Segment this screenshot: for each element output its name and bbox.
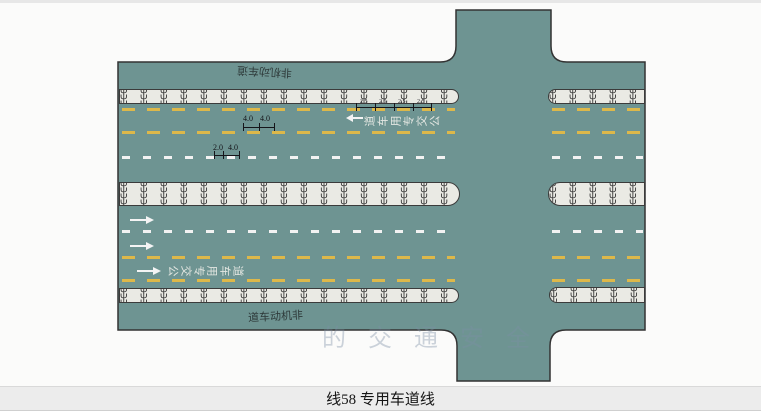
median-strip-bottom-left: Ψ Ψ Ψ Ψ Ψ Ψ Ψ Ψ Ψ Ψ Ψ Ψ Ψ Ψ Ψ Ψ Ψ Ψ Ψ Ψ … [119, 288, 459, 303]
right-arrow-marking-1 [130, 219, 146, 221]
yellow-dashed-line-top-2-right [552, 131, 643, 134]
median-strip-top-right: Ψ Ψ Ψ Ψ Ψ Ψ Ψ Ψ Ψ Ψ Ψ Ψ Ψ Ψ Ψ Ψ Ψ Ψ Ψ Ψ [548, 89, 645, 104]
dim-yellow-dash-1: 4.0 [243, 114, 253, 123]
dim-ruler-yellow-dash [243, 123, 275, 131]
grass-symbols: Ψ Ψ Ψ Ψ Ψ Ψ Ψ Ψ Ψ Ψ Ψ Ψ Ψ Ψ Ψ Ψ Ψ Ψ Ψ Ψ … [120, 182, 459, 206]
white-dashed-line-bottom-right [552, 230, 643, 233]
yellow-dashed-line-bottom-1-right [552, 256, 643, 259]
grass-symbols: Ψ Ψ Ψ Ψ Ψ Ψ Ψ Ψ Ψ Ψ Ψ Ψ Ψ Ψ Ψ Ψ Ψ Ψ Ψ Ψ … [120, 288, 458, 303]
median-strip-middle-left: Ψ Ψ Ψ Ψ Ψ Ψ Ψ Ψ Ψ Ψ Ψ Ψ Ψ Ψ Ψ Ψ Ψ Ψ Ψ Ψ … [119, 182, 460, 206]
grass-symbols: Ψ Ψ Ψ Ψ Ψ Ψ Ψ Ψ Ψ Ψ Ψ Ψ Ψ Ψ Ψ Ψ Ψ Ψ Ψ Ψ [550, 287, 644, 303]
label-top-nonmotor-lane: 非机动车道 [237, 63, 293, 82]
caption-bar: 线58 专用车道线 [0, 386, 761, 411]
grass-symbols: Ψ Ψ Ψ Ψ Ψ Ψ Ψ Ψ Ψ Ψ Ψ Ψ Ψ Ψ Ψ Ψ Ψ Ψ Ψ Ψ [549, 89, 644, 104]
dim-ruler-white-dash [214, 151, 240, 159]
grass-symbols: Ψ Ψ Ψ Ψ Ψ Ψ Ψ Ψ Ψ Ψ Ψ Ψ Ψ Ψ Ψ Ψ Ψ Ψ Ψ Ψ … [549, 182, 644, 206]
right-arrow-marking-3 [137, 270, 153, 272]
yellow-dashed-line-bottom-2-right [552, 279, 643, 282]
median-strip-bottom-right: Ψ Ψ Ψ Ψ Ψ Ψ Ψ Ψ Ψ Ψ Ψ Ψ Ψ Ψ Ψ Ψ Ψ Ψ Ψ Ψ [549, 287, 645, 303]
median-strip-top-left: Ψ Ψ Ψ Ψ Ψ Ψ Ψ Ψ Ψ Ψ Ψ Ψ Ψ Ψ Ψ Ψ Ψ Ψ Ψ Ψ … [119, 89, 459, 104]
white-dashed-line-top [122, 156, 455, 159]
label-bottom-nonmotor-lane: 非机动车道 [248, 307, 304, 326]
figure-caption: 线58 专用车道线 [326, 388, 435, 409]
median-strip-middle-right: Ψ Ψ Ψ Ψ Ψ Ψ Ψ Ψ Ψ Ψ Ψ Ψ Ψ Ψ Ψ Ψ Ψ Ψ Ψ Ψ … [548, 182, 645, 206]
yellow-dashed-line-bottom-1 [122, 256, 455, 259]
white-dashed-line-top-right [552, 156, 643, 159]
figure-page: Ψ Ψ Ψ Ψ Ψ Ψ Ψ Ψ Ψ Ψ Ψ Ψ Ψ Ψ Ψ Ψ Ψ Ψ Ψ Ψ … [0, 0, 761, 411]
pavement-text-bus-lane-bottom: 公交专用车道 [167, 264, 245, 280]
white-dashed-line-bottom [122, 230, 455, 233]
dim-yellow-dash-2: 4.0 [260, 114, 270, 123]
pavement-text-bus-lane-top: 道车用专交公 [363, 112, 441, 128]
dim-ruler-char-spacing [356, 103, 432, 111]
right-arrow-marking-2 [130, 245, 146, 247]
watermark-text: 的交通安全 [322, 318, 552, 353]
yellow-dashed-line-top-1-right [552, 108, 643, 111]
grass-symbols: Ψ Ψ Ψ Ψ Ψ Ψ Ψ Ψ Ψ Ψ Ψ Ψ Ψ Ψ Ψ Ψ Ψ Ψ Ψ Ψ … [120, 89, 458, 104]
yellow-dashed-line-top-2 [122, 131, 455, 134]
